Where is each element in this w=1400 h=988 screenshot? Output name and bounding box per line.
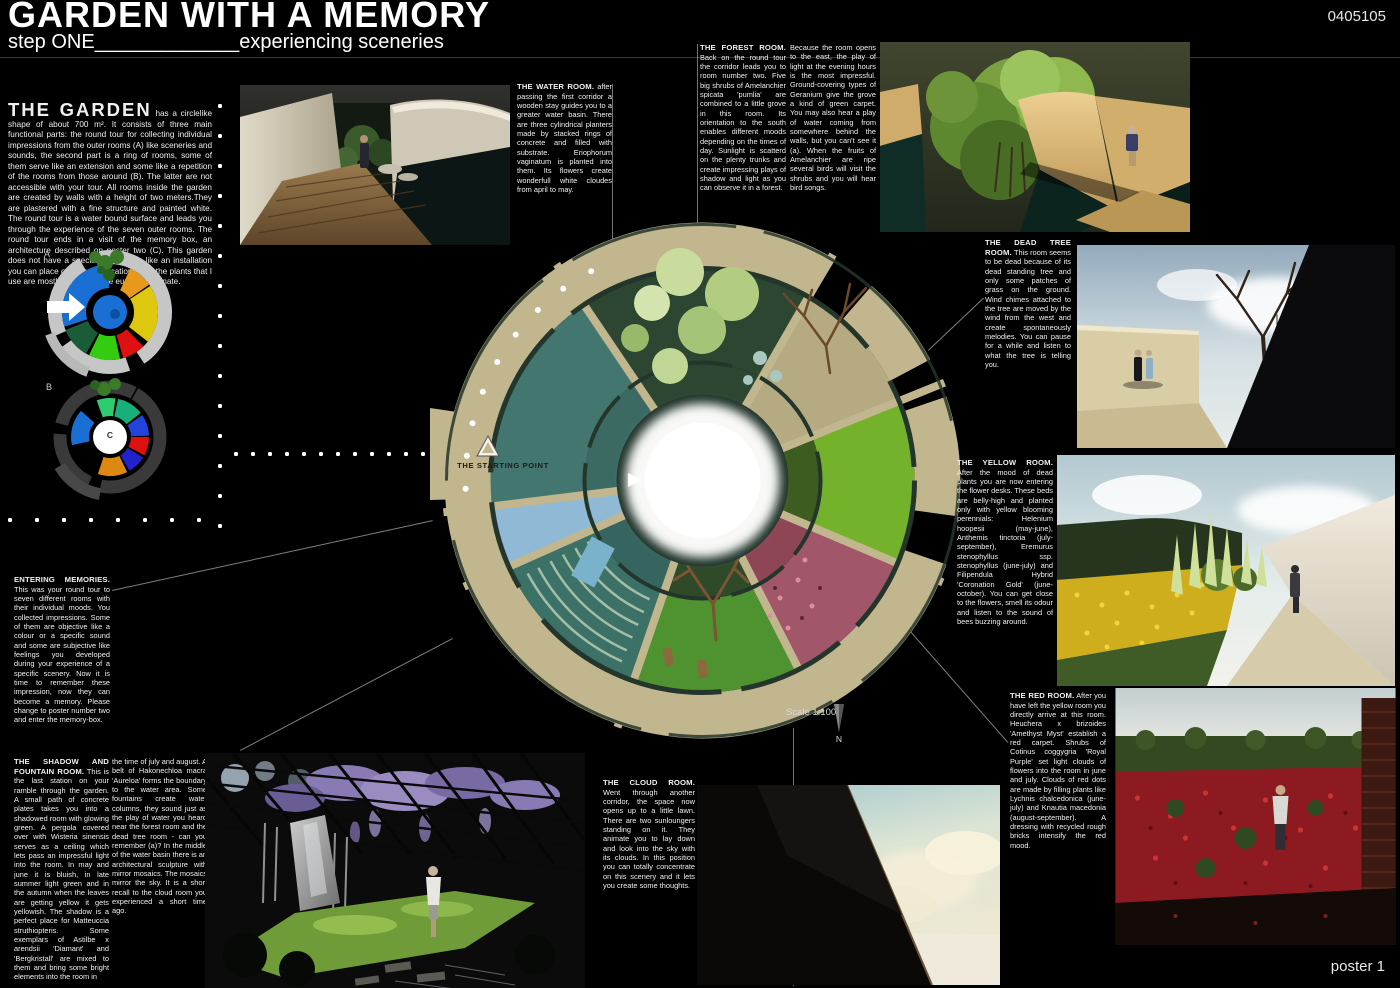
red-room-title: THE RED ROOM.: [1010, 691, 1074, 700]
yellow-room-body: After the mood of dead plants you are no…: [957, 468, 1053, 626]
forest-room-body1: Back on the round tour the corridor lead…: [700, 53, 786, 193]
entry-number: 0405105: [1328, 8, 1386, 25]
scale-label: Scale 1:100: [786, 707, 836, 718]
entering-memories-body: This was your round tour to seven differ…: [14, 585, 110, 725]
poster-canvas: GARDEN WITH A MEMORY step ONE___________…: [0, 0, 1400, 988]
forest-room-text-col2: Because the room opens to the east, the …: [790, 43, 876, 192]
cloud-room-photo: [697, 785, 1000, 985]
entering-memories-title: ENTERING MEMORIES.: [14, 575, 110, 584]
leader-line: [240, 638, 453, 751]
red-room-photo: [1115, 688, 1396, 945]
starting-point-label: THE STARTING POINT: [448, 461, 558, 470]
dead-tree-room-text: THE DEAD TREE ROOM. This room seems to b…: [985, 238, 1071, 369]
dead-tree-room-body: This room seems to be dead because of it…: [985, 248, 1071, 369]
water-room-body: after passing the first corridor a woode…: [517, 82, 612, 194]
dotted-guide-left: [4, 514, 218, 526]
red-room-text: THE RED ROOM. After you have left the ye…: [1010, 691, 1106, 850]
shadow-room-body1: This is the last station on your ramble …: [14, 767, 109, 982]
forest-room-body2: Because the room opens to the east, the …: [790, 43, 876, 192]
yellow-room-photo: [1057, 455, 1395, 686]
yellow-room-title: THE YELLOW ROOM.: [957, 458, 1053, 467]
red-room-body: After you have left the yellow room you …: [1010, 691, 1106, 850]
poster-number-label: poster 1: [1331, 958, 1385, 975]
yellow-room-text: THE YELLOW ROOM. After the mood of dead …: [957, 458, 1053, 626]
water-room-photo: [240, 85, 510, 245]
water-room-title: THE WATER ROOM.: [517, 82, 594, 91]
garden-heading: THE GARDEN: [8, 99, 152, 120]
shadow-room-photo: [205, 753, 585, 988]
cloud-room-body: Went through another corridor, the space…: [603, 788, 695, 890]
forest-room-text-col1: THE FOREST ROOM. Back on the round tour …: [700, 43, 786, 193]
forest-room-photo: [880, 42, 1190, 232]
leader-line: [112, 520, 433, 591]
garden-plan-drawing: [430, 208, 975, 753]
cloud-room-text: THE CLOUD ROOM. Went through another cor…: [603, 778, 695, 890]
shadow-room-text-col2: the time of july and august. A belt of H…: [112, 757, 207, 916]
north-label: N: [831, 734, 847, 744]
north-arrow-icon: [831, 702, 847, 736]
diagram-c-label: C: [104, 430, 116, 440]
cloud-room-title: THE CLOUD ROOM.: [603, 778, 695, 787]
dotted-guide-vertical: [214, 100, 226, 528]
forest-room-title: THE FOREST ROOM.: [700, 43, 786, 52]
shadow-room-body2: the time of july and august. A belt of H…: [112, 757, 207, 915]
entering-memories-text: ENTERING MEMORIES. This was your round t…: [14, 575, 110, 725]
shadow-room-text-col1: THE SHADOW AND FOUNTAIN ROOM. This is th…: [14, 757, 109, 982]
diagram-a-rooms-scheme: [35, 237, 185, 387]
page-subtitle: step ONE_____________experiencing scener…: [8, 31, 444, 54]
dotted-guide-to-start: [230, 448, 432, 460]
starting-point-marker-icon: [475, 434, 501, 458]
dead-tree-room-photo: [1077, 245, 1395, 448]
water-room-text: THE WATER ROOM. after passing the first …: [517, 82, 612, 194]
